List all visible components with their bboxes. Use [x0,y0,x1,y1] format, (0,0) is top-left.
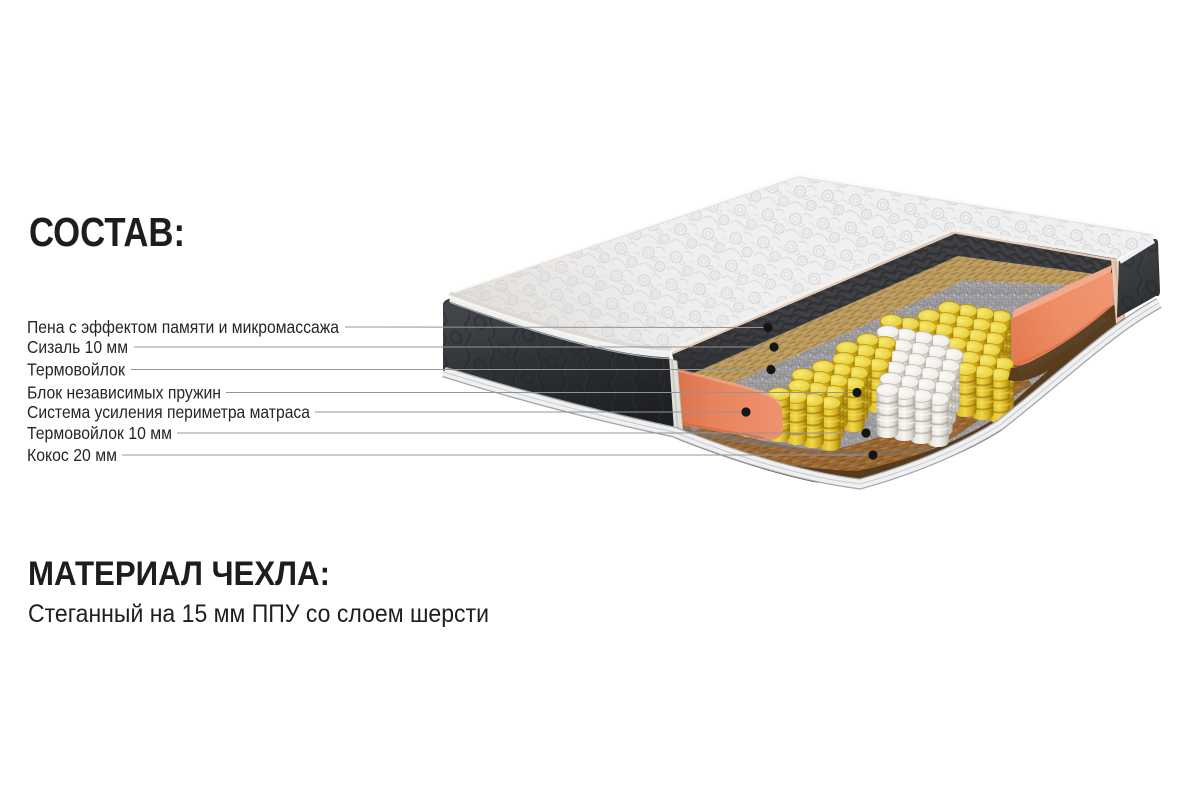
svg-text:Система усиления периметра мат: Система усиления периметра матраса [27,402,310,422]
svg-text:Пена с эффектом памяти и микро: Пена с эффектом памяти и микромассажа [27,317,339,337]
svg-text:Стеганный на 15 мм ППУ со слое: Стеганный на 15 мм ППУ со слоем шерсти [28,600,489,628]
svg-text:МАТЕРИАЛ ЧЕХЛА:: МАТЕРИАЛ ЧЕХЛА: [28,555,330,593]
svg-text:СОСТАВ:: СОСТАВ: [29,209,185,255]
svg-text:Сизаль 10 мм: Сизаль 10 мм [27,337,128,357]
svg-text:Кокос 20 мм: Кокос 20 мм [27,445,117,465]
svg-text:Блок независимых пружин: Блок независимых пружин [27,383,221,403]
svg-text:Термовойлок: Термовойлок [27,360,125,380]
svg-text:Термовойлок 10 мм: Термовойлок 10 мм [27,423,172,443]
